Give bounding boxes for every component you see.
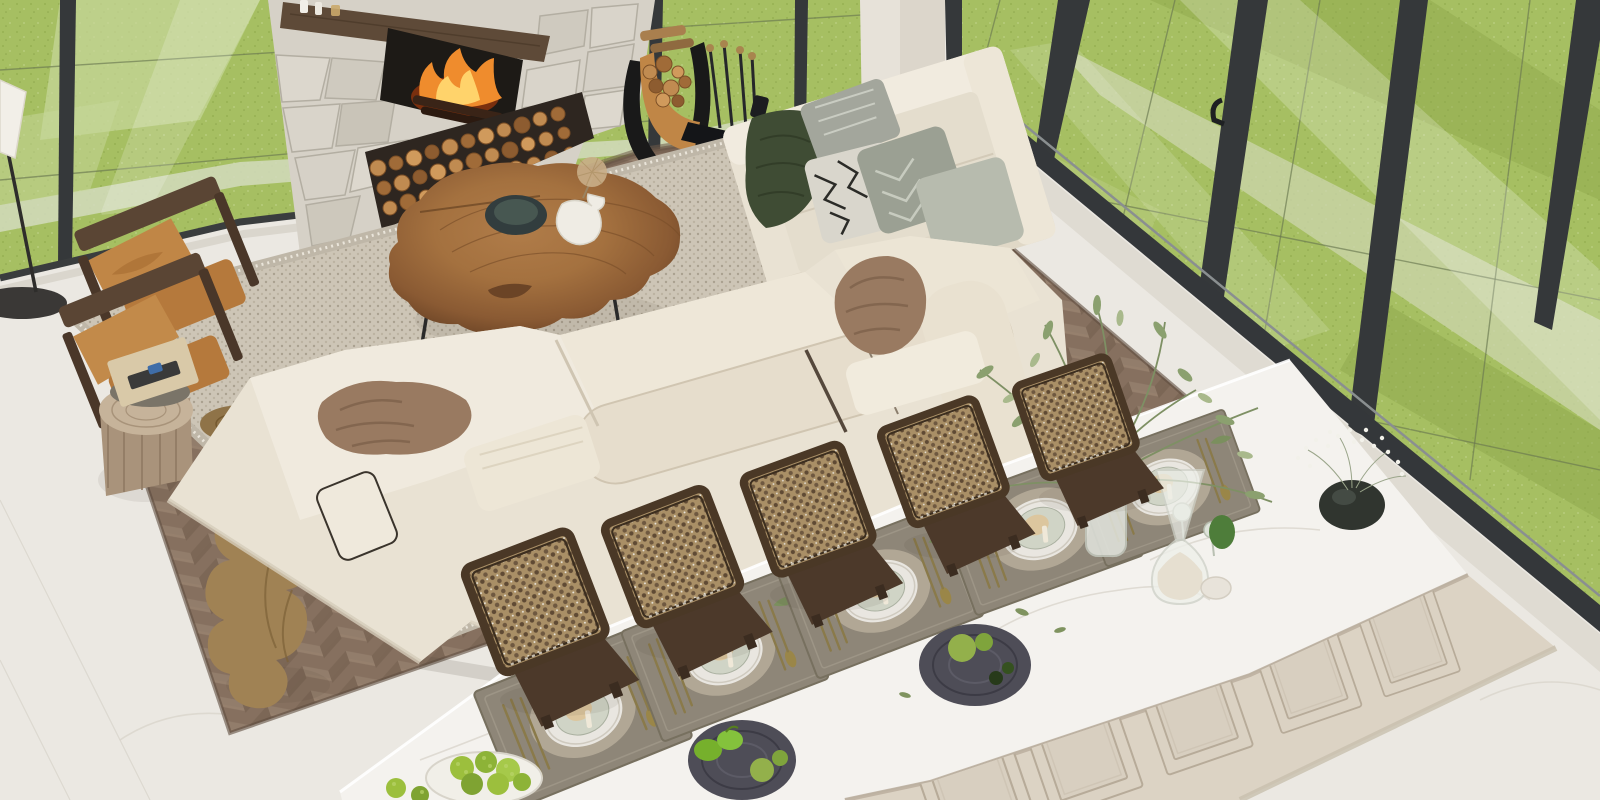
small-green-vase — [1209, 515, 1235, 549]
stone-pebble — [1201, 577, 1231, 599]
interior-render — [0, 0, 1600, 800]
scene-canvas — [0, 0, 1600, 800]
round-mat-2 — [688, 720, 796, 800]
round-mat-1 — [919, 624, 1031, 706]
sofa-pillow-brown-throw — [318, 381, 472, 455]
